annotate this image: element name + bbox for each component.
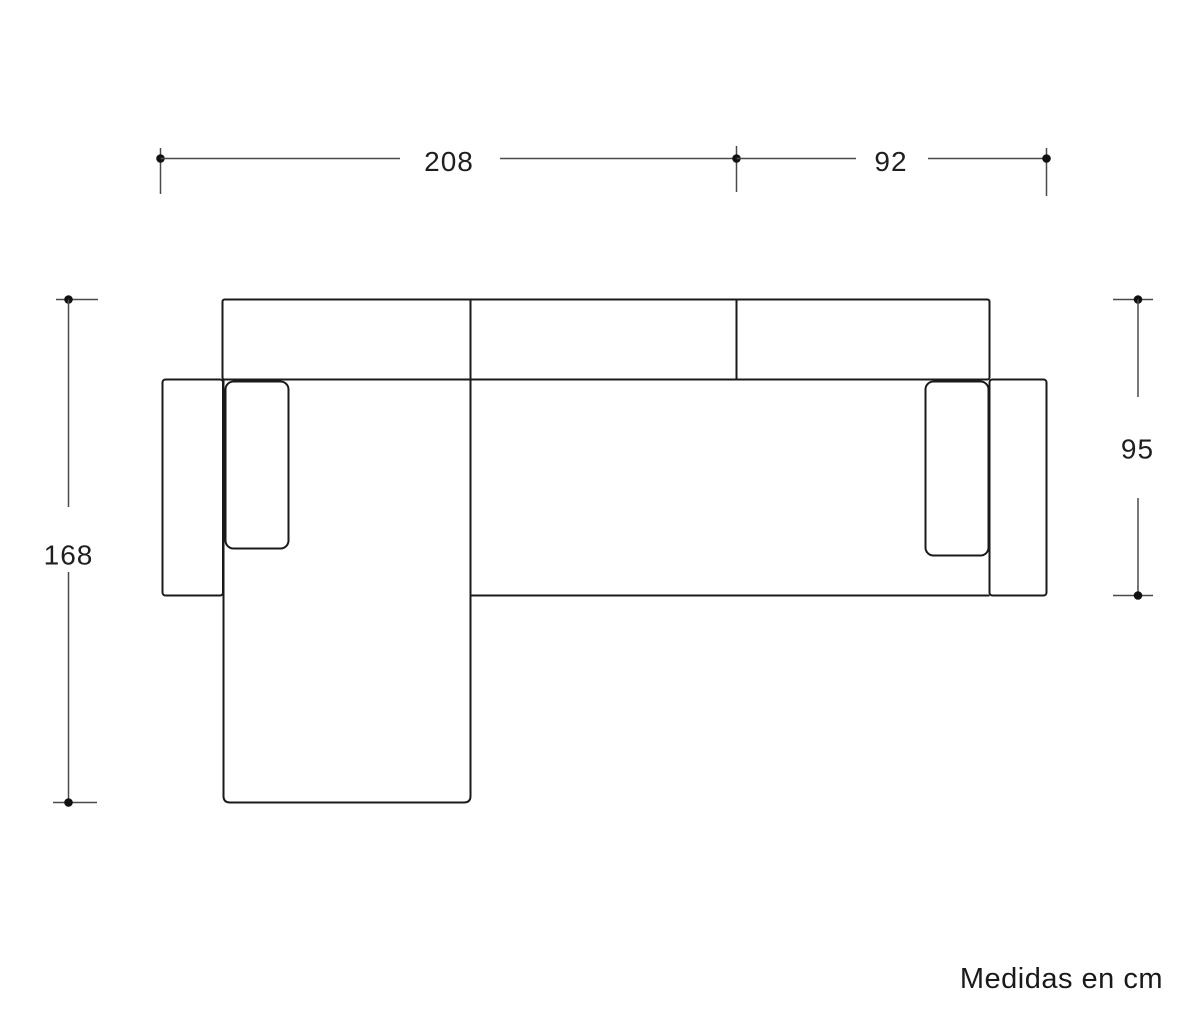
dim-endpoint-dot	[64, 798, 73, 807]
dimension-label-width-left: 208	[424, 146, 474, 177]
sofa-dimension-diagram: 208 92 168	[0, 0, 1200, 1028]
dimension-label-width-right: 92	[874, 146, 907, 177]
dim-endpoint-dot	[1134, 591, 1143, 600]
right-armrest-cushion	[926, 382, 989, 556]
chaise-cushion	[226, 382, 289, 549]
right-armrest	[990, 380, 1047, 596]
dimension-depth-sofa: 95	[1113, 295, 1154, 600]
sofa-backrest	[223, 300, 990, 380]
left-armrest	[163, 380, 224, 596]
dimension-label-depth-sofa: 95	[1121, 434, 1154, 465]
sofa-outline	[163, 300, 1047, 803]
sofa-dimension-diagram-page: 208 92 168	[0, 0, 1200, 1028]
dimension-label-depth-total: 168	[44, 540, 94, 571]
dimension-width-left-section: 208	[156, 146, 736, 194]
dim-endpoint-dot	[1042, 154, 1051, 163]
dimension-width-right-section: 92	[732, 146, 1051, 196]
dimension-depth-total: 168	[44, 295, 98, 807]
units-note: Medidas en cm	[960, 963, 1163, 995]
